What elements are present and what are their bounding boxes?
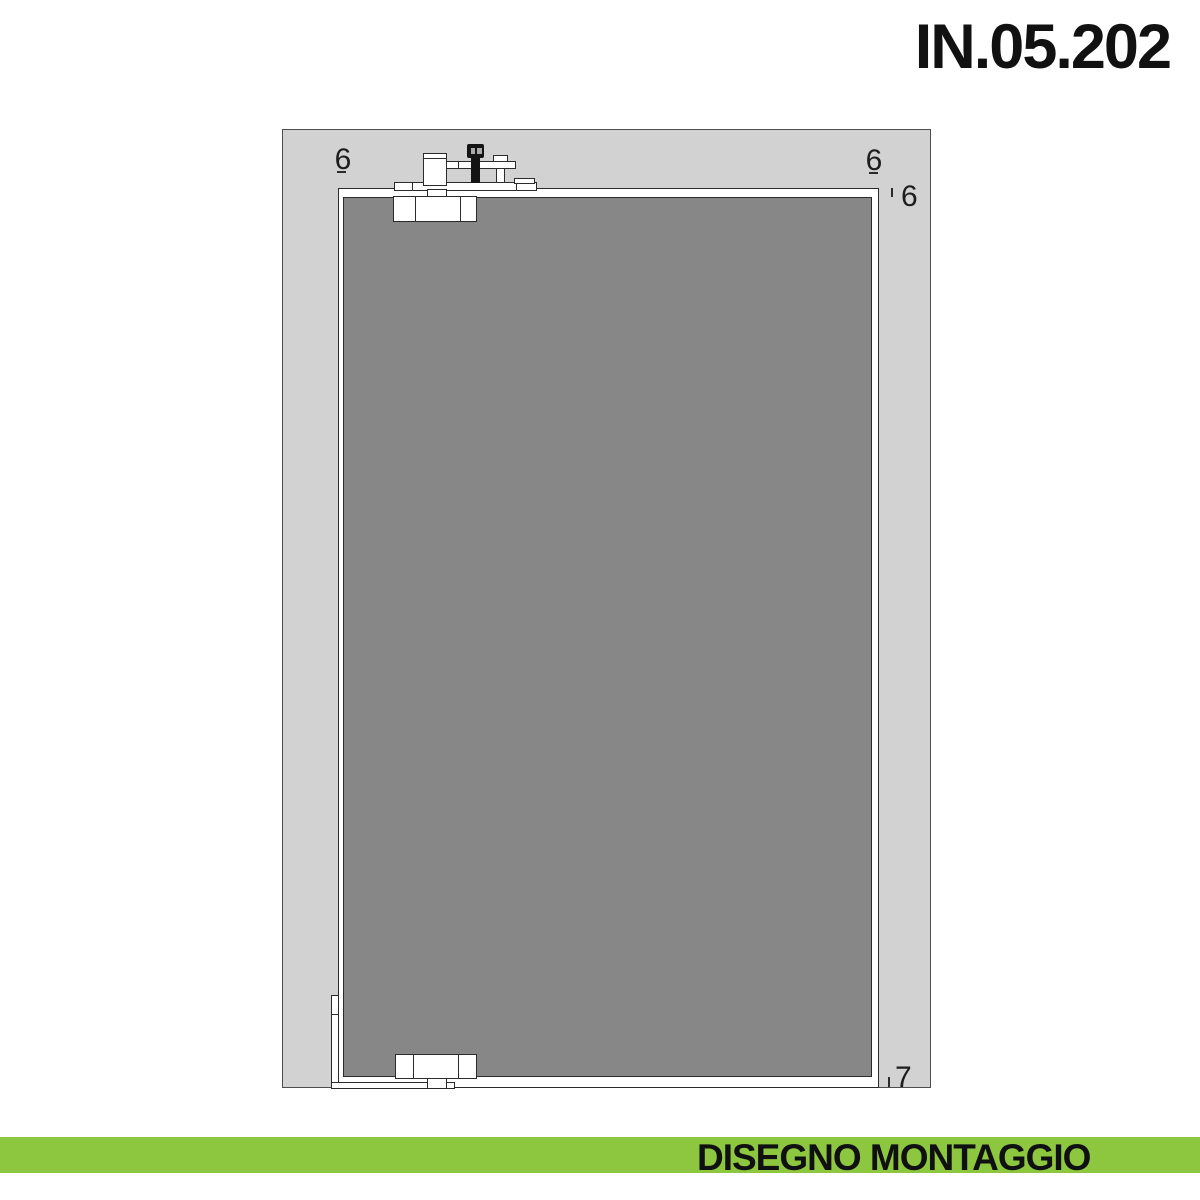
footer-title: DISEGNO MONTAGGIO — [697, 1139, 1090, 1176]
rail-end-plate — [514, 178, 535, 184]
clamp-joint-line — [415, 197, 416, 221]
detail-label-right-top: 6 — [901, 182, 918, 212]
detail-label-right-bottom: 7 — [895, 1063, 912, 1093]
section-mark-underline — [869, 172, 878, 174]
clamp-neck-bottom — [427, 1078, 447, 1089]
arm-leg — [496, 168, 505, 183]
bottom-glass-clamp — [395, 1054, 477, 1079]
mounting-block-lid-line — [424, 158, 446, 159]
strip-joint-line — [332, 1014, 338, 1015]
document-code: IN.05.202 — [915, 16, 1170, 79]
clamp-joint-line — [413, 1055, 414, 1078]
rail-joint-line — [516, 183, 517, 190]
arm-nut — [493, 155, 508, 162]
screw-head-knurl — [471, 148, 476, 155]
wall-profile-strip-vertical — [331, 995, 339, 1089]
clamp-step-tab — [446, 1082, 455, 1089]
leader-tick — [891, 188, 893, 197]
clamp-joint-line — [458, 1055, 459, 1078]
glass-panel — [343, 197, 872, 1077]
screw-head-knurl — [477, 148, 482, 155]
rail-joint-line — [412, 183, 413, 190]
section-mark-underline — [337, 171, 346, 173]
clamp-joint-line — [460, 197, 461, 221]
adjuster-arm — [446, 161, 516, 169]
arm-joint-line — [458, 162, 459, 168]
top-glass-clamp — [393, 196, 477, 222]
leader-tick — [888, 1077, 890, 1087]
assembly-drawing-page: IN.05.202 6 6 6 7 — [0, 0, 1200, 1200]
